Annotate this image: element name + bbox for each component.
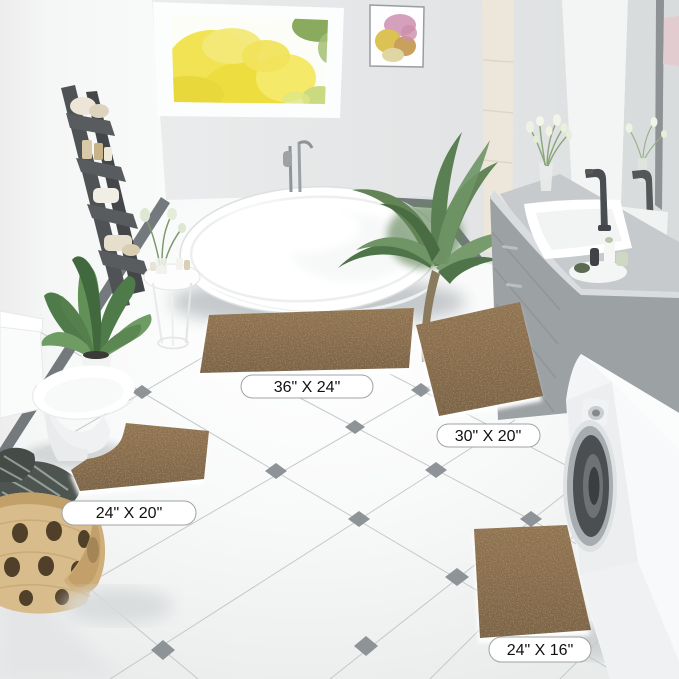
- svg-text:24" X 20": 24" X 20": [96, 505, 163, 522]
- svg-text:24" X 16": 24" X 16": [507, 642, 574, 659]
- svg-text:30" X 20": 30" X 20": [455, 428, 522, 445]
- svg-text:36" X 24": 36" X 24": [274, 379, 341, 396]
